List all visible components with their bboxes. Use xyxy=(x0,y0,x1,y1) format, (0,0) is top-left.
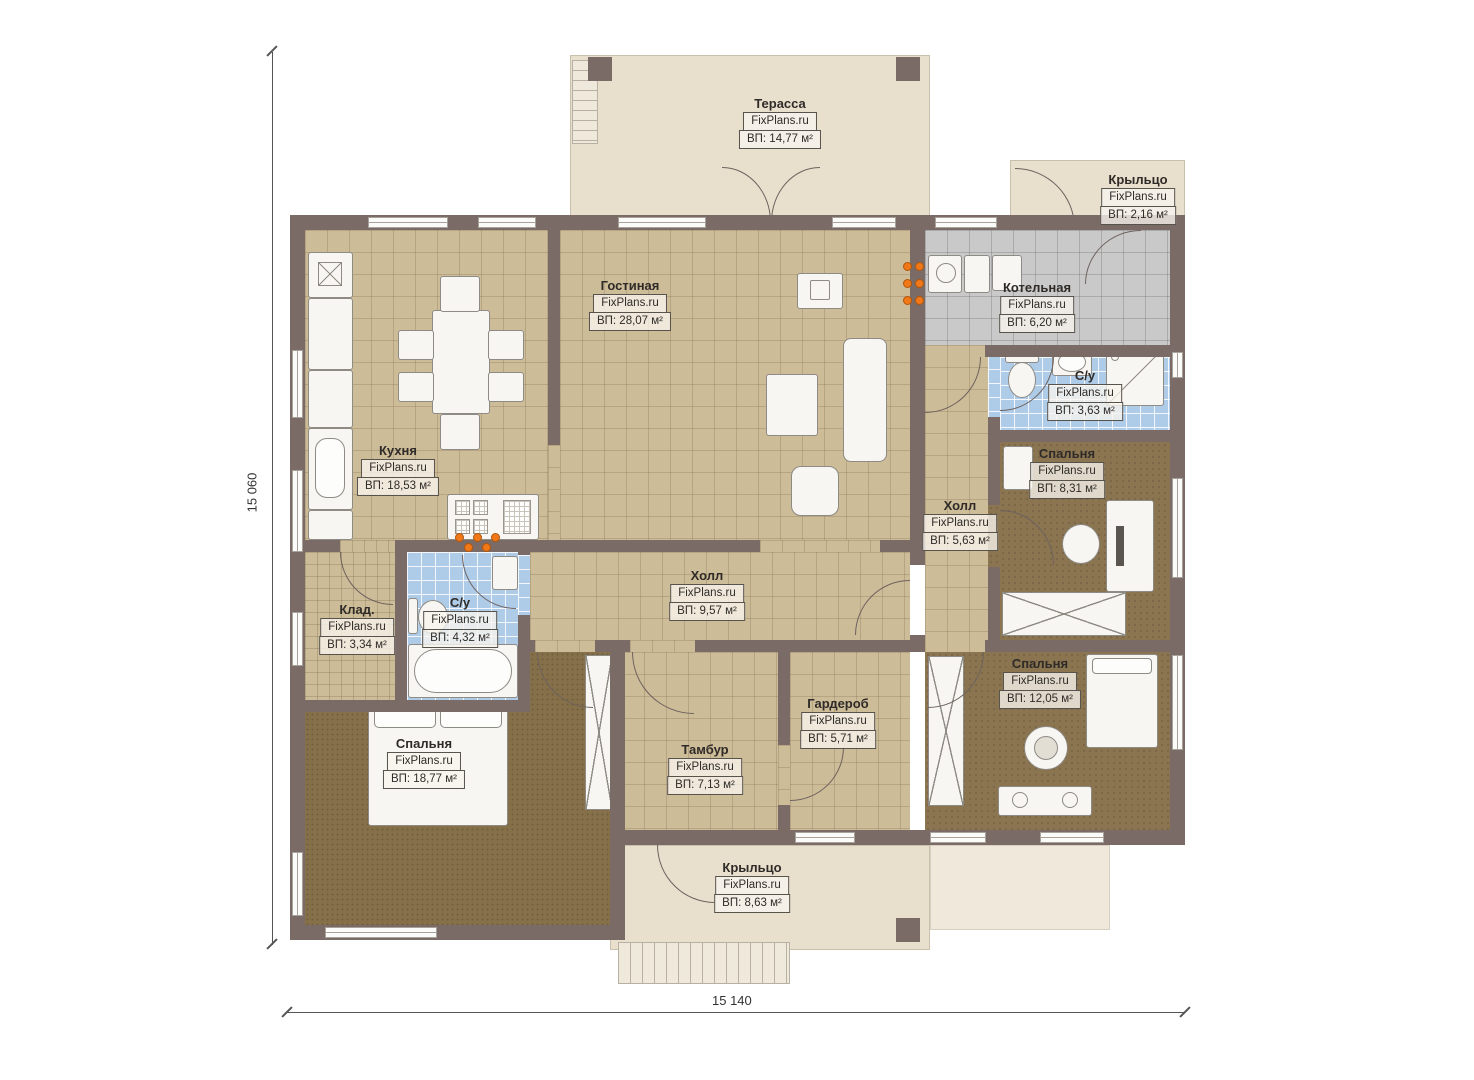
window xyxy=(1172,478,1183,578)
wall-segment xyxy=(695,640,910,652)
wall-segment xyxy=(548,230,560,445)
room-name: Холл xyxy=(691,568,724,583)
wall-segment xyxy=(988,417,1000,505)
room-brand: FixPlans.ru xyxy=(320,618,394,637)
window xyxy=(1040,832,1104,843)
room-label-vestibule: Тамбур FixPlans.ru ВП: 7,13 м² xyxy=(667,742,743,795)
porch-steps xyxy=(618,942,790,984)
room-area: ВП: 5,71 м² xyxy=(800,730,876,749)
room-name: Крыльцо xyxy=(722,860,781,875)
office-chair xyxy=(1062,524,1100,564)
room-label-bedroom-bottomright: Спальня FixPlans.ru ВП: 12,05 м² xyxy=(999,656,1081,709)
window xyxy=(832,217,896,228)
wall-segment xyxy=(518,615,530,712)
room-area: ВП: 2,16 м² xyxy=(1100,206,1176,225)
room-name: С/у xyxy=(450,595,470,610)
wall-segment xyxy=(305,700,530,712)
toilet-tank xyxy=(408,598,418,634)
wall-segment xyxy=(305,540,340,552)
radiator-dot xyxy=(915,296,924,305)
room-brand: FixPlans.ru xyxy=(715,876,789,895)
room-name: Гардероб xyxy=(807,696,868,711)
room-brand: FixPlans.ru xyxy=(801,712,875,731)
window xyxy=(935,217,997,228)
room-brand: FixPlans.ru xyxy=(361,459,435,478)
doorway-floor xyxy=(548,445,560,540)
terrace-post xyxy=(588,57,612,81)
window xyxy=(325,927,437,938)
room-name: Гостиная xyxy=(601,278,660,293)
dresser-knob xyxy=(1062,792,1078,808)
wall-segment xyxy=(778,805,790,830)
room-brand: FixPlans.ru xyxy=(743,112,817,131)
room-brand: FixPlans.ru xyxy=(1000,296,1074,315)
window xyxy=(795,832,855,843)
radiator-dot xyxy=(915,279,924,288)
stove-burner xyxy=(455,500,470,515)
wall-segment xyxy=(985,345,1170,357)
burner-indicator xyxy=(455,533,464,542)
boiler-unit xyxy=(964,255,990,293)
bathtub-basin xyxy=(414,649,512,693)
radiator-dot xyxy=(903,279,912,288)
wall-segment xyxy=(395,552,407,700)
room-label-storage: Клад. FixPlans.ru ВП: 3,34 м² xyxy=(319,602,395,655)
room-name: Спальня xyxy=(396,736,452,751)
room-name: Спальня xyxy=(1012,656,1068,671)
burner-indicator xyxy=(473,533,482,542)
room-brand: FixPlans.ru xyxy=(1101,188,1175,207)
doorway-floor xyxy=(988,355,1000,417)
dimension-label-vertical: 15 060 xyxy=(244,473,259,513)
room-area: ВП: 6,20 м² xyxy=(999,314,1075,333)
room-brand: FixPlans.ru xyxy=(593,294,667,313)
room-label-hall-central: Холл FixPlans.ru ВП: 9,57 м² xyxy=(669,568,745,621)
window xyxy=(292,852,303,916)
room-name: Терасса xyxy=(754,96,806,111)
wall-segment xyxy=(778,652,790,745)
window xyxy=(1172,655,1183,750)
tv xyxy=(810,280,830,300)
room-name: Спальня xyxy=(1039,446,1095,461)
room-label-boiler: Котельная FixPlans.ru ВП: 6,20 м² xyxy=(999,280,1075,333)
room-brand: FixPlans.ru xyxy=(923,514,997,533)
dimension-line-vertical xyxy=(272,52,273,945)
kitchen-counter xyxy=(308,370,353,428)
dining-chair xyxy=(440,414,480,450)
window xyxy=(292,470,303,552)
room-name: Холл xyxy=(944,498,977,513)
window xyxy=(618,217,706,228)
coffee-table xyxy=(766,374,818,436)
wardrobe xyxy=(1002,592,1126,636)
room-area: ВП: 4,32 м² xyxy=(422,629,498,648)
wall-segment xyxy=(518,640,535,652)
wall-segment xyxy=(910,635,925,652)
sofa xyxy=(843,338,887,462)
doorway-floor xyxy=(630,640,695,652)
room-label-kitchen: Кухня FixPlans.ru ВП: 18,53 м² xyxy=(357,443,439,496)
washing-machine-door xyxy=(936,263,956,283)
window xyxy=(478,217,536,228)
dining-chair xyxy=(398,330,434,360)
room-area: ВП: 8,31 м² xyxy=(1029,480,1105,499)
kitchen-counter xyxy=(308,510,353,540)
porch-bottom-extension xyxy=(930,845,1110,930)
room-brand: FixPlans.ru xyxy=(423,611,497,630)
radiator-dot xyxy=(903,296,912,305)
room-name: Котельная xyxy=(1003,280,1071,295)
monitor xyxy=(1116,526,1124,566)
room-brand: FixPlans.ru xyxy=(668,758,742,777)
dining-chair xyxy=(398,372,434,402)
dimension-label-horizontal: 15 140 xyxy=(712,993,752,1008)
wall-segment xyxy=(518,540,530,555)
room-area: ВП: 9,57 м² xyxy=(669,602,745,621)
wall-segment xyxy=(988,345,1000,355)
dining-chair xyxy=(440,276,480,312)
burner-indicator xyxy=(491,533,500,542)
room-label-porch-top: Крыльцо FixPlans.ru ВП: 2,16 м² xyxy=(1100,172,1176,225)
room-brand: FixPlans.ru xyxy=(1030,462,1104,481)
stove-burner xyxy=(455,519,470,534)
table-top xyxy=(1034,736,1058,760)
wall-segment xyxy=(560,540,760,552)
oven xyxy=(503,500,531,534)
room-area: ВП: 12,05 м² xyxy=(999,690,1081,709)
window xyxy=(292,612,303,666)
room-brand: FixPlans.ru xyxy=(1048,384,1122,403)
pillow xyxy=(1092,658,1152,674)
doorway-floor xyxy=(535,640,595,652)
burner-indicator xyxy=(464,543,473,552)
doorway-floor xyxy=(760,540,880,552)
wall-segment xyxy=(610,640,625,940)
stove-burner xyxy=(473,500,488,515)
room-area: ВП: 8,63 м² xyxy=(714,894,790,913)
room-name: Тамбур xyxy=(681,742,728,757)
room-area: ВП: 3,63 м² xyxy=(1047,402,1123,421)
room-name: Кухня xyxy=(379,443,417,458)
wall-segment xyxy=(985,640,1170,652)
wall-segment xyxy=(290,215,305,940)
room-area: ВП: 18,77 м² xyxy=(383,770,465,789)
kitchen-sink xyxy=(315,438,345,498)
window xyxy=(368,217,448,228)
room-label-bedroom-bottomleft: Спальня FixPlans.ru ВП: 18,77 м² xyxy=(383,736,465,789)
room-label-living: Гостиная FixPlans.ru ВП: 28,07 м² xyxy=(589,278,671,331)
stove-burner xyxy=(473,519,488,534)
wall-segment xyxy=(880,540,910,552)
room-label-bathroom-central: С/у FixPlans.ru ВП: 4,32 м² xyxy=(422,595,498,648)
room-label-terrace: Терасса FixPlans.ru ВП: 14,77 м² xyxy=(739,96,821,149)
room-label-wardrobe: Гардероб FixPlans.ru ВП: 5,71 м² xyxy=(800,696,876,749)
room-brand: FixPlans.ru xyxy=(670,584,744,603)
room-label-porch-bottom: Крыльцо FixPlans.ru ВП: 8,63 м² xyxy=(714,860,790,913)
desk xyxy=(1106,500,1154,592)
porch-post xyxy=(896,918,920,942)
radiator-dot xyxy=(915,262,924,271)
radiator-dot xyxy=(903,262,912,271)
room-area: ВП: 28,07 м² xyxy=(589,312,671,331)
room-label-bedroom-topright: Спальня FixPlans.ru ВП: 8,31 м² xyxy=(1029,446,1105,499)
kitchen-appliance xyxy=(318,262,342,286)
window xyxy=(292,350,303,418)
room-name: Крыльцо xyxy=(1108,172,1167,187)
dresser-knob xyxy=(1012,792,1028,808)
room-area: ВП: 14,77 м² xyxy=(739,130,821,149)
window xyxy=(1172,352,1183,378)
room-label-hall-right: Холл FixPlans.ru ВП: 5,63 м² xyxy=(922,498,998,551)
room-area: ВП: 3,34 м² xyxy=(319,636,395,655)
room-brand: FixPlans.ru xyxy=(387,752,461,771)
doorway-floor xyxy=(518,555,530,615)
terrace-post xyxy=(896,57,920,81)
room-label-bathroom-right: С/у FixPlans.ru ВП: 3,63 м² xyxy=(1047,368,1123,421)
room-brand: FixPlans.ru xyxy=(1003,672,1077,691)
room-name: Клад. xyxy=(339,602,374,617)
burner-indicator xyxy=(482,543,491,552)
dining-chair xyxy=(488,372,524,402)
window xyxy=(930,832,986,843)
room-area: ВП: 7,13 м² xyxy=(667,776,743,795)
room-area: ВП: 18,53 м² xyxy=(357,477,439,496)
kitchen-counter xyxy=(308,298,353,370)
doorway-floor xyxy=(778,745,790,805)
dining-chair xyxy=(488,330,524,360)
room-area: ВП: 5,63 м² xyxy=(922,532,998,551)
armchair xyxy=(791,466,839,516)
wall-segment xyxy=(595,640,630,652)
dining-table xyxy=(432,310,490,414)
wall-segment xyxy=(1000,430,1170,442)
dimension-line-horizontal xyxy=(287,1012,1185,1013)
floor-plan-canvas: Терасса FixPlans.ru ВП: 14,77 м² Крыльцо… xyxy=(0,0,1474,1080)
room-name: С/у xyxy=(1075,368,1095,383)
doorway-floor xyxy=(340,540,395,552)
